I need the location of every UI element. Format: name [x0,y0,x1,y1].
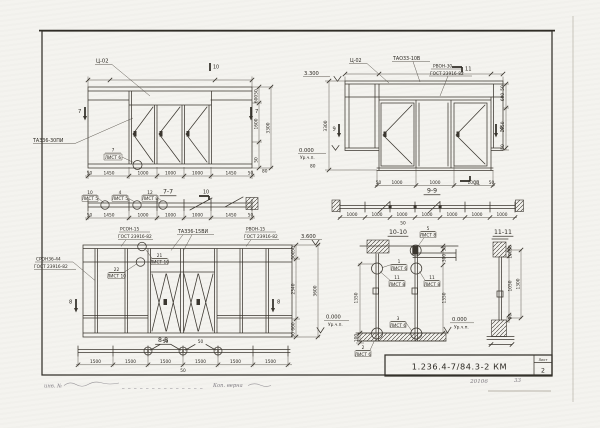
dim: 1000 [447,212,458,218]
dim: 1500 [90,359,101,365]
dim-80: 80 [310,164,316,170]
level-note: Ур.ч.п. [300,155,315,161]
base-hatch [492,320,507,337]
section-marker-7-left: 7 [78,109,81,115]
sheet-number: 2 [541,368,545,375]
dim: 2340 [291,283,297,294]
flag-number: 22 [114,267,120,273]
door-handle [187,131,190,137]
footer-annotations: инв. № Коп. верна [44,382,271,389]
node-mark [439,205,442,208]
level-bottom: 0.000 [326,315,341,321]
dim: 1000 [497,212,508,218]
dim: 1500 [195,359,206,365]
label-c02: Ц-02 [350,58,362,64]
level-top: 3.600 [301,234,316,240]
lintel-hatch [493,242,506,257]
signature-scribble [64,382,119,386]
flag-number: 11 [394,275,400,281]
label-rv: РВОН-15 [246,227,265,233]
view-plan-topright: 1000 1000 1000 1000 1000 1000 1000 50 [332,200,524,227]
dim: 1000 [138,212,149,218]
section-marker-10: 10 [203,190,209,196]
callout-flag-number: 7 [112,148,115,154]
detail-dim-ticks [358,244,445,345]
view-elevation-topright: Ц-02 ТАО33-10В РВОН-30 ГОСТ 23916-82 3.3… [298,56,509,195]
plan-linework [340,202,515,214]
label-c02: Ц-02 [96,59,109,65]
flag-sheet: ЛИСТ 6 [391,266,407,272]
wall-hatch [246,198,258,210]
flag-number: 11 [429,275,435,281]
flag-sheet: ЛИСТ 8 [142,196,158,202]
level-note: Ур.ч.п. [454,325,469,331]
handwritten-note-right: Коп. верна [212,383,243,389]
label-rs-gost: ГОСТ 23916-82 [118,234,152,240]
detail-bubble [101,201,109,209]
level-mark-triangles [332,77,341,151]
view-elevation-bottomleft: РСОН-15 ГОСТ 23916-82 ТАЗ36-15ВИ РВОН-15… [34,227,349,340]
dim: 50 [376,180,382,186]
gap-dim: 50 [163,339,169,345]
door-handle [160,131,163,137]
dim: 1000 [165,171,176,177]
label-gost: ГОСТ 23916-82 [430,71,464,77]
dim: 1500 [125,359,136,365]
door-handle [134,131,137,137]
section-marker-10-top: 10 [213,65,219,71]
dim-total-height: 3300 [266,122,272,133]
label-rv-gost: ГОСТ 23916-82 [244,234,278,240]
flag-sheet: ЛИСТ 8 [424,282,440,288]
dim: 1500 [160,359,171,365]
handwritten-note-left: инв. № [44,384,62,390]
flag-sheet: ЛИСТ 10 [107,274,126,280]
dim: 50 [500,85,506,91]
flag-number: 10 [87,190,93,196]
dim: 1050 [508,280,514,291]
dim: 1350 [354,292,360,303]
title-block: 1.236.4-7/84.3-2 КМ Лист 2 20106 33 [385,355,552,391]
label-ta: ТАЗ36-15ВИ [177,229,209,235]
section-marker-9-left: 9 [333,127,336,133]
sheet-label: Лист [538,358,547,362]
level-value: 0.000 [452,317,467,323]
door-handle [197,299,201,305]
dim: 50 [248,171,254,177]
section-arrowheads [337,133,498,138]
section-marker-11-top: 11 [465,67,472,73]
dim: 1050 [500,121,506,132]
dim: 50 [87,171,93,177]
label-rv: РВОН-30 [433,64,452,70]
dim: 1000 [468,180,479,186]
flag-sheet: ЛИСТ 5 [112,196,128,202]
signature-scribble [248,384,271,387]
dim: 660 [291,322,297,330]
detail-bubble [133,201,141,209]
dim: 1000 [397,212,408,218]
dim: 1000 [192,171,203,177]
dim-total-height: 3300 [323,120,329,131]
node-mark [414,205,417,208]
stamp-page: 33 [514,378,522,384]
flag-number: 12 [147,190,153,196]
flag-sheet: ЛИСТ 5 [82,196,98,202]
dim: 100 [508,250,514,258]
label-product: ТАЗ36-30ПИ [32,138,64,144]
flag-number: 2 [362,345,365,351]
dim: 1000 [372,212,383,218]
dim: 50 [87,212,93,218]
section-marker-8-left: 8 [69,300,72,306]
dim: 600 [500,93,506,101]
flag-number: 3 [397,316,400,322]
flag-number: 1 [398,259,401,265]
stamp-number: 20106 [469,379,488,385]
dim: 100 [354,334,360,342]
section-mark-lines [85,63,251,116]
dim: 1000 [422,212,433,218]
detail-bubble [159,201,167,209]
dim: 1000 [165,212,176,218]
dim: 50 [248,212,254,218]
leader-lines [33,65,150,163]
scanned-drawing-sheet: Ц-02 ТАЗ36-30ПИ 7 7 10 7 ЛИСТ 6 50 1450 … [0,0,600,428]
dim: 50 [500,144,506,150]
dim: 50 [489,180,495,186]
label-sr-gost: ГОСТ 23916-82 [34,264,68,270]
flag-number: 5 [427,226,430,232]
dim: 1600 [254,118,260,129]
dim: 50 [508,245,514,251]
view-detail-10-10: 10-10 5 ЛИСТ 8 1 ЛИСТ 6 11 ЛИСТ 8 11 ЛИС… [354,226,475,358]
door-handle [384,132,387,138]
dim: 50 [254,89,260,95]
dim: 1500 [230,359,241,365]
section-marker-7-right: 7 [255,109,258,115]
level-mark-triangle [444,327,451,333]
view-detail-11-11: 11-11 50 100 1050 50 1300 [487,229,523,347]
label-ta: ТАО33-10В [392,56,420,62]
elevation-linework [345,81,503,171]
dimension-ticks [86,78,273,178]
section-arrowheads [83,116,253,121]
section-title: 7-7 [163,189,173,196]
dim: 1000 [347,212,358,218]
dim: 50 [291,332,297,338]
detail-bubble [138,242,147,251]
dim: 1000 [430,180,441,186]
label-rs: РСОН-15 [120,227,139,233]
wall-hatch [332,200,340,212]
level-top: 3.300 [304,71,319,77]
flag-sheet: ЛИСТ 8 [420,233,436,239]
dim: 500 [291,251,297,259]
dim: 50 [254,157,260,163]
dimension-lines [298,74,509,187]
level-note: Ур.ч.п. [328,322,343,328]
dim: 1000 [392,180,403,186]
flag-number: 4 [119,190,122,196]
flag-sheet: ЛИСТ 6 [390,323,406,329]
dim: 1450 [226,171,237,177]
node-mark [389,205,392,208]
dim: 1450 [104,212,115,218]
flag-sheet: ЛИСТ 6 [355,352,371,358]
dim: 50 [508,314,514,320]
handle-mark [497,291,503,297]
lintel-hatch [367,240,389,253]
gap-dim: 50 [198,339,204,345]
view-plan-7-7: 10 ЛИСТ 5 4 ЛИСТ 5 12 ЛИСТ 8 7-7 10 50 1… [82,189,258,221]
dim: 1000 [192,212,203,218]
post-cap [412,246,418,255]
document-code: 1.236.4-7/84.3-2 КМ [412,362,507,372]
door-handle [457,132,460,138]
section-mark-line [199,196,209,200]
wall-hatch [516,200,524,212]
dim: 1000 [472,212,483,218]
door-handle [164,299,168,305]
section-title: 10-10 [389,229,407,236]
label-sr: СРОН36-44 [36,257,61,263]
view-elevation-topleft: Ц-02 ТАЗ36-30ПИ 7 7 10 7 ЛИСТ 6 50 1450 … [32,59,273,180]
dim: 1450 [104,171,115,177]
plan-dim-lines [76,356,292,367]
dim: 1450 [226,212,237,218]
dim-total-height: 3600 [313,285,319,296]
callout-flag-sheet: ЛИСТ 6 [105,155,121,161]
drawing-canvas: Ц-02 ТАЗ36-30ПИ 7 7 10 7 ЛИСТ 6 50 1450 … [0,0,600,428]
flag-sheet: ЛИСТ 8 [389,282,405,288]
flag-sheet: ЛИСТ 10 [150,260,169,266]
dim-offset: 50 [180,368,186,374]
flag-number: 21 [157,253,163,259]
dim-total: 1300 [516,278,522,289]
dim: 50 [442,246,448,252]
view-plan-8-8: 8-8 50 50 1500 1500 1500 1500 1500 1500 … [76,337,292,374]
dim-80: 80 [262,169,268,175]
dim: 50 [291,246,297,252]
dim: 1000 [138,171,149,177]
dim: 600 [254,95,260,103]
dim: 1350 [442,292,448,303]
level-bottom: 0.000 [299,148,314,154]
section-title: 9-9 [427,188,437,195]
section-marker-8-right: 8 [277,300,280,306]
dim: 1500 [265,359,276,365]
dim: 300 [442,254,448,262]
dim-offset: 50 [400,221,406,227]
elevation-linework [83,245,292,337]
section-title: 11-11 [494,229,512,236]
